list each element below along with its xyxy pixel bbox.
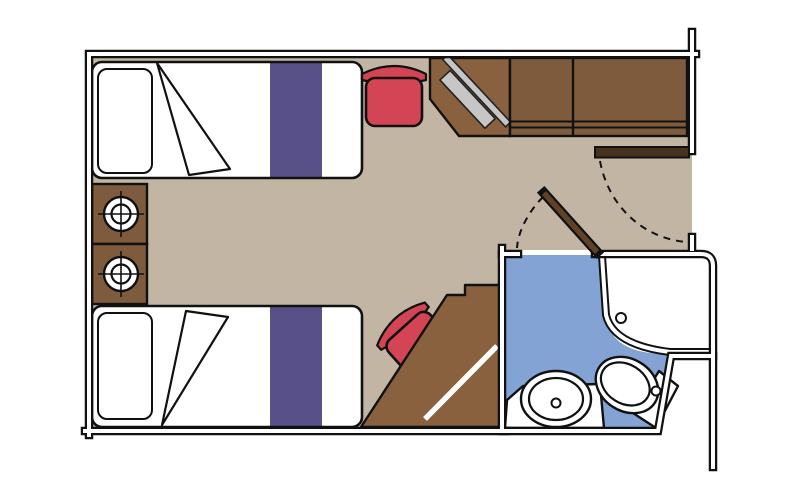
nightstand-lower bbox=[92, 244, 147, 304]
bed-runner-stripe bbox=[270, 306, 322, 427]
floorplan-svg bbox=[0, 0, 800, 495]
sink-icon bbox=[521, 371, 591, 427]
wardrobe-body bbox=[510, 58, 687, 136]
nightstand-upper bbox=[92, 184, 147, 244]
stool-top bbox=[362, 66, 426, 126]
twin-bed-bottom bbox=[92, 306, 362, 427]
entry-door-leaf bbox=[595, 147, 689, 158]
wardrobe bbox=[510, 58, 687, 136]
pillow bbox=[98, 313, 152, 419]
twin-bed-top bbox=[92, 62, 362, 178]
toilet-flush-button bbox=[652, 387, 661, 396]
shower-drain-icon bbox=[616, 313, 626, 323]
stool-seat bbox=[366, 78, 422, 126]
bed-runner-stripe bbox=[270, 62, 322, 178]
pillow bbox=[98, 69, 152, 173]
floorplan-canvas bbox=[0, 0, 800, 495]
